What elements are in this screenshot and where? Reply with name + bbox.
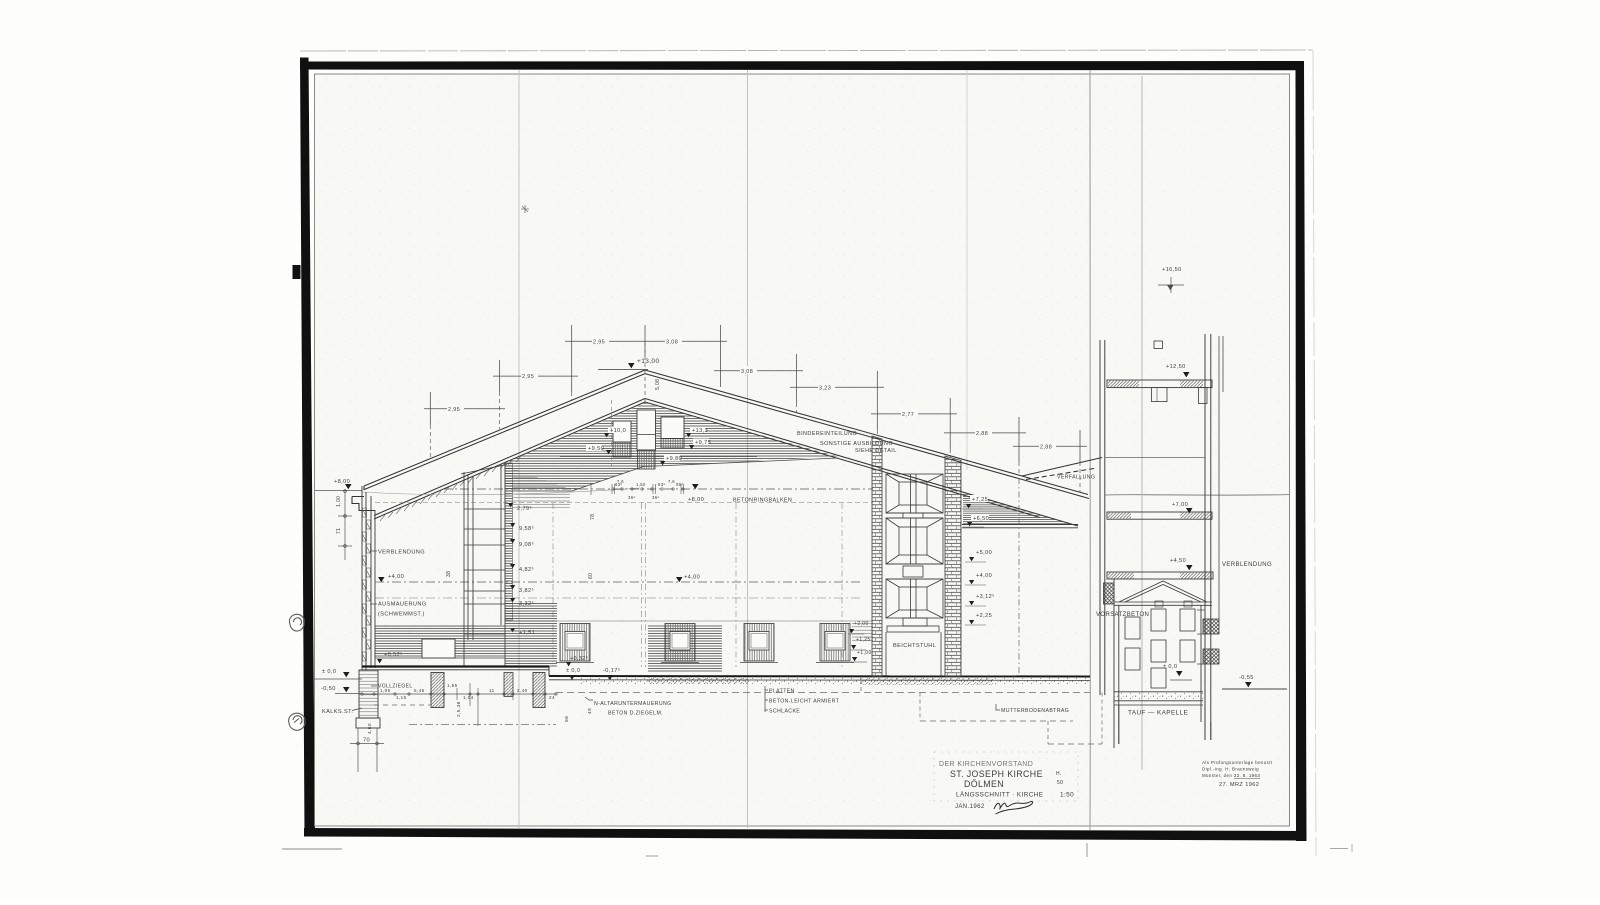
svg-text:+9,75: +9,75 [695,440,711,446]
svg-text:-0,17⁵: -0,17⁵ [603,667,620,674]
svg-text:LÄNGSSCHNITT · KIRCHE: LÄNGSSCHNITT · KIRCHE [956,791,1043,799]
svg-text:+9,50: +9,50 [588,446,604,452]
svg-text:-0,50: -0,50 [321,686,336,692]
svg-text:98: 98 [564,716,570,722]
svg-text:24: 24 [549,695,555,700]
svg-text:ST. JOSEPH KIRCHE: ST. JOSEPH KIRCHE [950,769,1043,779]
svg-text:5,45: 5,45 [414,688,425,693]
svg-text:9,08⁵: 9,08⁵ [519,541,534,548]
svg-text:JAN.1962: JAN.1962 [955,804,985,810]
svg-text:60: 60 [588,573,594,579]
svg-text:70: 70 [363,738,370,744]
svg-text:27. MRZ 1962: 27. MRZ 1962 [1219,782,1259,788]
svg-text:3,23: 3,23 [819,386,831,392]
svg-text:SCHLACKE: SCHLACKE [769,709,800,715]
svg-text:VERBLENDUNG: VERBLENDUNG [378,550,425,556]
svg-text:N-ALTARUNTERMAUERUNG: N-ALTARUNTERMAUERUNG [594,701,672,707]
svg-text:36⁵: 36⁵ [628,495,636,500]
svg-text:+3,12⁵: +3,12⁵ [976,593,995,600]
svg-text:KALKS.ST.: KALKS.ST. [322,709,353,715]
svg-text:2,77: 2,77 [902,412,914,418]
svg-text:VERFALLUNG: VERFALLUNG [1057,475,1095,481]
svg-text:+4,00: +4,00 [388,574,404,580]
svg-text:2,5,38: 2,5,38 [456,701,462,717]
svg-text:36⁵: 36⁵ [652,495,660,500]
svg-text:9,58⁵: 9,58⁵ [519,525,534,532]
svg-text:BETONRINGBALKEN: BETONRINGBALKEN [733,498,792,504]
svg-text:78: 78 [590,514,596,520]
svg-text:BETON D.ZIEGELM.: BETON D.ZIEGELM. [608,711,663,717]
svg-text:+7,25: +7,25 [972,497,988,503]
svg-text:4,60: 4,60 [367,723,373,734]
svg-text:1:50: 1:50 [1060,792,1074,799]
svg-text:1,50: 1,50 [636,482,646,487]
svg-text:1,55: 1,55 [447,683,458,688]
svg-text:1,05: 1,05 [380,688,391,693]
svg-text:71: 71 [336,528,342,534]
svg-text:1,04: 1,04 [463,695,474,700]
svg-text:38: 38 [446,571,452,577]
svg-text:+1,00: +1,00 [857,650,872,656]
svg-text:2,79⁵: 2,79⁵ [517,505,532,512]
svg-text:+13,00: +13,00 [637,358,659,365]
svg-text:± 0,0: ± 0,0 [1163,664,1177,670]
svg-text:2,88: 2,88 [976,431,988,437]
svg-text:+1,25: +1,25 [856,637,871,643]
svg-text:4,82⁵: 4,82⁵ [519,566,534,573]
svg-text:3,82⁵: 3,82⁵ [519,587,534,594]
svg-text:1,15: 1,15 [396,695,407,700]
svg-text:96⁵: 96⁵ [676,482,684,487]
svg-text:Als Prüfungsunterlage benutzt: Als Prüfungsunterlage benutzt [1202,760,1273,765]
svg-text:2,95: 2,95 [522,374,534,380]
svg-text:+7,00: +7,00 [1172,502,1188,508]
svg-text:11: 11 [489,688,495,693]
svg-text:BINDEREINTEILUNG: BINDEREINTEILUNG [797,431,857,437]
svg-text:2,40: 2,40 [517,688,528,693]
svg-text:50: 50 [1057,780,1063,786]
svg-text:+6,50: +6,50 [973,516,989,522]
svg-text:+2,00: +2,00 [854,621,869,627]
svg-text:2,95: 2,95 [448,407,460,413]
svg-text:5,08: 5,08 [655,379,661,390]
svg-text:Dipl.-Ing. H. Braunsweig: Dipl.-Ing. H. Braunsweig [1202,767,1259,772]
svg-text:TAUF — KAPELLE: TAUF — KAPELLE [1128,710,1188,717]
svg-text:2,88: 2,88 [1040,445,1052,451]
svg-text:+4,00: +4,00 [976,573,992,579]
svg-text:+0,32⁵: +0,32⁵ [570,656,588,662]
svg-text:83⁵: 83⁵ [658,482,666,487]
svg-text:3,08: 3,08 [741,369,753,375]
svg-text:BETON-LEICHT ARMIERT: BETON-LEICHT ARMIERT [769,699,840,705]
svg-text:+10,0: +10,0 [610,428,626,434]
svg-text:+8,00: +8,00 [688,497,704,503]
svg-text:± 0,0: ± 0,0 [566,668,580,674]
svg-text:+4,50: +4,50 [1170,558,1186,564]
svg-text:H.: H. [1056,771,1062,777]
svg-text:+9,80: +9,80 [666,456,682,462]
svg-text:BEICHTSTUHL: BEICHTSTUHL [893,643,936,649]
svg-text:PLATTEN: PLATTEN [769,689,795,695]
svg-text:+13,3: +13,3 [692,428,708,434]
svg-text:7,6: 7,6 [668,479,675,484]
svg-text:-0,55: -0,55 [1239,675,1254,681]
svg-text:3,08: 3,08 [666,340,678,346]
svg-text:+0,52⁵: +0,52⁵ [384,651,403,658]
svg-text:49: 49 [587,708,593,714]
svg-text:+5,00: +5,00 [976,550,992,556]
svg-text:VORSATZBETON: VORSATZBETON [1096,612,1149,618]
svg-text:7,6: 7,6 [617,479,624,484]
svg-text:AUSMAUERUNG: AUSMAUERUNG [378,602,427,608]
svg-text:MUTTERBODENABTRAG: MUTTERBODENABTRAG [1001,708,1069,714]
svg-text:DER KIRCHENVORSTAND: DER KIRCHENVORSTAND [939,761,1033,768]
svg-text:1,00: 1,00 [336,496,342,507]
svg-text:+4,00: +4,00 [684,575,700,581]
svg-text:+12,50: +12,50 [1166,364,1186,370]
svg-text:± 0,0: ± 0,0 [322,669,336,675]
svg-text:DÖLMEN: DÖLMEN [964,779,1004,789]
svg-text:2,95: 2,95 [593,340,605,346]
svg-text:Münster, den 22. 8. 1963: Münster, den 22. 8. 1963 [1202,773,1260,778]
svg-text:VERBLENDUNG: VERBLENDUNG [1222,562,1272,568]
svg-text:(SCHWEMMST.): (SCHWEMMST.) [378,612,425,618]
svg-text:+2,25: +2,25 [976,613,992,619]
svg-text:+16,50: +16,50 [1162,267,1182,273]
